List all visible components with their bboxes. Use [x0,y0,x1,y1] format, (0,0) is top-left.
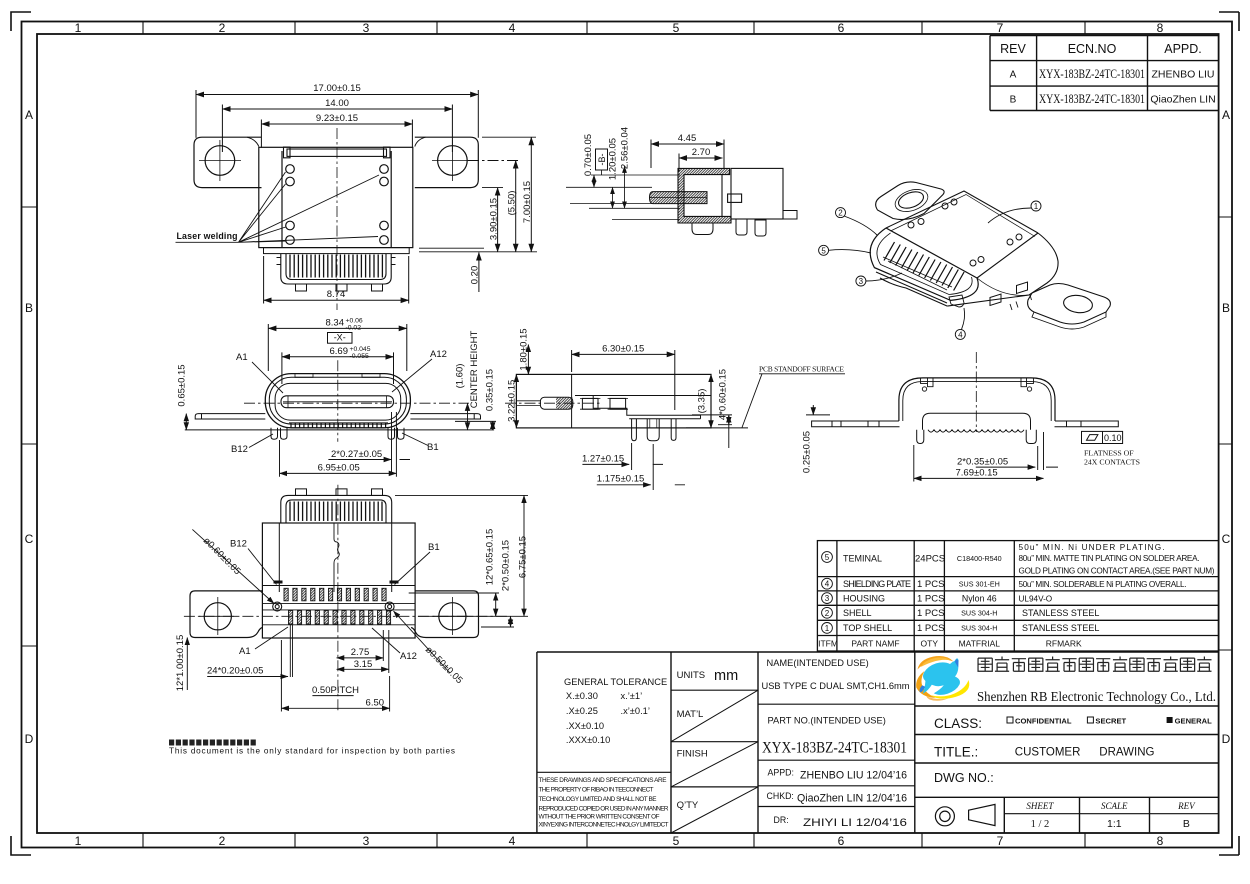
svg-text:3: 3 [859,277,864,286]
svg-text:SUS 304-H: SUS 304-H [961,609,997,618]
svg-text:1 PCS: 1 PCS [917,608,944,619]
svg-text:5: 5 [673,21,680,35]
svg-text:B: B [1183,818,1190,830]
svg-text:50u” MIN. Ni UNDER PLATING: 50u” MIN. Ni UNDER PLATING. [1019,543,1165,552]
svg-text:Laser welding: Laser welding [177,231,238,241]
svg-text:9.23±0.15: 9.23±0.15 [316,113,358,124]
svg-text:7.00±0.15: 7.00±0.15 [522,181,533,223]
svg-text:ZHIYI LI 12/04’16: ZHIYI LI 12/04’16 [803,817,907,829]
svg-text:C: C [1222,532,1231,546]
svg-text:A1: A1 [239,646,251,657]
svg-text:+0.06: +0.06 [346,318,363,325]
svg-text:Shenzhen RB Electronic Technol: Shenzhen RB Electronic Technology Co., L… [977,689,1216,704]
svg-text:6.95±0.05: 6.95±0.05 [318,462,360,473]
svg-text:SHELL: SHELL [843,608,872,618]
svg-text:1: 1 [1034,202,1039,211]
svg-text:2: 2 [219,834,226,848]
svg-text:7.69±0.15: 7.69±0.15 [955,468,997,479]
svg-text:mm: mm [714,668,738,684]
svg-text:D: D [25,732,34,746]
svg-text:A12: A12 [400,651,417,662]
svg-text:12*0.65±0.15: 12*0.65±0.15 [485,529,496,585]
svg-text:B1: B1 [428,542,440,553]
svg-text:6.50: 6.50 [366,698,385,709]
svg-text:X.±0.30: X.±0.30 [566,691,598,701]
svg-text:TECHNOLOGY LIMITED AND SHALL N: TECHNOLOGY LIMITED AND SHALL NOT BE [539,796,657,803]
svg-text:.XXX±0.10: .XXX±0.10 [566,735,610,745]
svg-text:CONFIDENTIAL: CONFIDENTIAL [1015,717,1072,726]
svg-text:1.20±0.05: 1.20±0.05 [608,138,619,180]
svg-text:6.69: 6.69 [330,346,349,357]
svg-text:3: 3 [363,834,370,848]
svg-text:24PCS: 24PCS [915,554,945,565]
svg-text:ECN.NO: ECN.NO [1068,42,1117,56]
svg-text:1.80±0.15: 1.80±0.15 [519,328,530,370]
svg-text:FLATNESS OF: FLATNESS OF [1084,449,1134,458]
svg-text:ZHENBO LIU 12/04’16: ZHENBO LIU 12/04’16 [800,770,907,782]
svg-text:0.20: 0.20 [470,266,481,285]
svg-text:(3.35): (3.35) [697,389,708,414]
svg-text:DRAWING: DRAWING [1099,747,1154,759]
svg-text:0.50PITCH: 0.50PITCH [312,685,359,696]
svg-text:.X±0.25: .X±0.25 [566,706,598,716]
svg-text:PART NAMF: PART NAMF [851,639,899,649]
svg-text:XYX-183BZ-24TC-18301: XYX-183BZ-24TC-18301 [762,740,907,757]
svg-text:ZHENBO LIU: ZHENBO LIU [1151,69,1214,81]
svg-text:CLASS:: CLASS: [934,716,982,731]
svg-text:2*0.50±0.15: 2*0.50±0.15 [501,540,512,591]
svg-text:TITLE.:: TITLE.: [934,745,978,760]
svg-text:USB TYPE C DUAL SMT,CH1.6m: USB TYPE C DUAL SMT,CH1.6mm [762,681,910,691]
svg-text:TEMINAL: TEMINAL [843,554,882,564]
svg-text:FINISH: FINISH [677,749,708,760]
svg-text:SHIELDING PLATE: SHIELDING PLATE [843,579,911,589]
svg-text:6: 6 [838,21,845,35]
svg-text:PCB STANDOFF SURFACE: PCB STANDOFF SURFACE [759,365,844,374]
svg-text:0.70±0.05: 0.70±0.05 [583,134,594,176]
svg-text:B1: B1 [427,442,439,453]
svg-text:1 PCS: 1 PCS [917,623,944,634]
svg-text:(1.60): (1.60) [455,364,466,389]
svg-text:UL94V-O: UL94V-O [1019,594,1053,603]
svg-text:XINYEXING INTERCONNETEC HNOLGY: XINYEXING INTERCONNETEC HNOLGY LIMITEDCT [539,822,669,829]
svg-text:14.00: 14.00 [325,98,349,109]
svg-text:4: 4 [509,834,516,848]
svg-text:3.22±0.15: 3.22±0.15 [507,380,518,422]
svg-text:2.70: 2.70 [692,147,711,158]
svg-text:C: C [25,532,34,546]
svg-text:2.56±0.04: 2.56±0.04 [620,127,631,169]
svg-text:+0.045: +0.045 [350,346,371,353]
svg-text:2: 2 [825,609,830,618]
svg-text:3: 3 [825,594,830,603]
svg-text:TOP SHELL: TOP SHELL [843,623,892,633]
svg-text:5: 5 [821,246,826,255]
svg-text:x.’±1’: x.’±1’ [621,691,643,701]
svg-text:1 PCS: 1 PCS [917,593,944,604]
svg-text:STANLESS STEEL: STANLESS STEEL [1022,623,1099,633]
svg-text:2*0.27±0.05: 2*0.27±0.05 [331,449,382,460]
svg-text:7: 7 [997,834,1004,848]
svg-text:XYX-183BZ-24TC-18301: XYX-183BZ-24TC-18301 [1039,92,1145,106]
svg-text:12*1.00±0.15: 12*1.00±0.15 [175,635,186,691]
svg-text:0.35±0.15: 0.35±0.15 [485,369,496,411]
svg-text:4: 4 [958,330,963,339]
svg-text:1: 1 [75,834,82,848]
svg-text:ITFM: ITFM [818,639,838,649]
svg-text:UNITS: UNITS [677,670,706,681]
svg-text:6: 6 [838,834,845,848]
svg-text:2: 2 [219,21,226,35]
svg-text:1: 1 [75,21,82,35]
svg-text:1.27±0.15: 1.27±0.15 [582,454,624,465]
svg-text:3.90±0.15: 3.90±0.15 [489,198,500,240]
svg-text:4*0.60±0.15: 4*0.60±0.15 [718,369,729,420]
svg-text:1.175±0.15: 1.175±0.15 [597,474,644,485]
svg-text:8: 8 [1157,834,1164,848]
svg-text:SCALE: SCALE [1101,801,1128,811]
svg-text:MAT’L: MAT’L [677,709,704,720]
svg-text:B12: B12 [230,539,247,550]
svg-text:24*0.20±0.05: 24*0.20±0.05 [207,666,263,677]
svg-text:C18400-R540: C18400-R540 [957,554,1002,563]
svg-text:REPRODUCED COPIED OR USED IN A: REPRODUCED COPIED OR USED IN ANY MANNER [539,806,669,813]
svg-text:APPD.: APPD. [1164,42,1202,56]
svg-text:SECRET: SECRET [1095,717,1126,726]
svg-text:NAME(INTENDED USE): NAME(INTENDED USE) [767,658,869,668]
svg-text:A: A [1222,108,1230,122]
svg-text:-0.055: -0.055 [350,353,369,360]
svg-text:(5.50): (5.50) [507,191,518,216]
svg-text:OTY: OTY [921,639,939,649]
svg-text:RFMARK: RFMARK [1046,639,1082,649]
svg-text:3: 3 [363,21,370,35]
svg-text:.XX±0.10: .XX±0.10 [566,721,604,731]
svg-text:REV: REV [1000,42,1026,56]
svg-text:5: 5 [825,553,830,562]
svg-text:1 / 2: 1 / 2 [1031,819,1050,830]
svg-text:B: B [25,301,33,315]
svg-text:DR:: DR: [774,815,789,825]
svg-text:HOUSING: HOUSING [843,593,885,603]
svg-text:REV: REV [1177,801,1196,811]
svg-text:B12: B12 [231,444,248,455]
svg-text:MATFRIAL: MATFRIAL [959,639,1001,649]
svg-text:APPD:: APPD: [768,768,794,778]
svg-text:0.65±0.15: 0.65±0.15 [177,364,188,406]
svg-text:A: A [1010,70,1017,81]
svg-text:.x’±0.1’: .x’±0.1’ [621,706,650,716]
svg-text:-0.02: -0.02 [346,325,362,332]
svg-text:8.74: 8.74 [327,289,346,300]
svg-text:8: 8 [1157,21,1164,35]
svg-text:WTHOUT THE PRIOR WRITTEN CONS: WTHOUT THE PRIOR WRITTEN CONSENT OF [539,814,660,821]
svg-text:7: 7 [997,21,1004,35]
svg-text:A12: A12 [430,349,447,360]
svg-text:-B-: -B- [597,154,607,166]
svg-text:CHKD:: CHKD: [767,791,794,801]
svg-text:STANLESS STEEL: STANLESS STEEL [1022,608,1099,618]
svg-text:1: 1 [825,624,830,633]
svg-text:17.00±0.15: 17.00±0.15 [313,83,360,94]
svg-text:GENERAL: GENERAL [1175,717,1212,726]
svg-text:-X-: -X- [334,333,346,343]
svg-text:XYX-183BZ-24TC-18301: XYX-183BZ-24TC-18301 [1039,67,1145,81]
svg-text:24X CONTACTS: 24X CONTACTS [1084,458,1140,467]
svg-text:QiaoZhen LIN 12/04’16: QiaoZhen LIN 12/04’16 [797,793,907,805]
svg-text:5: 5 [673,834,680,848]
svg-text:CUSTOMER: CUSTOMER [1015,747,1081,759]
svg-text:50u” MIN. SOLDERABLE Ni PL: 50u” MIN. SOLDERABLE Ni PLATING OVERALL. [1019,580,1187,589]
svg-text:Nylon 46: Nylon 46 [962,593,997,603]
svg-text:QiaoZhen LIN: QiaoZhen LIN [1150,94,1215,106]
svg-text:A: A [25,108,33,122]
svg-text:B: B [1010,95,1017,106]
svg-text:DWG NO.:: DWG NO.: [934,771,994,785]
svg-text:4: 4 [825,580,830,589]
svg-text:SUS 301-EH: SUS 301-EH [959,580,1000,589]
svg-text:PART NO.(INTENDED USE): PART NO.(INTENDED USE) [768,716,886,726]
svg-text:3.15: 3.15 [354,659,373,670]
svg-text:SHEET: SHEET [1026,801,1054,811]
svg-text:4.45: 4.45 [678,133,697,144]
svg-text:0.10: 0.10 [1104,433,1122,443]
svg-text:SUS 304-H: SUS 304-H [961,624,997,633]
svg-text:2.75: 2.75 [351,647,370,658]
svg-text:4: 4 [509,21,516,35]
svg-text:THE PROPERTY OF RIBAO IN TEECO: THE PROPERTY OF RIBAO IN TEECONNECT [539,787,654,794]
svg-text:A1: A1 [236,352,248,363]
svg-text:8.34: 8.34 [326,318,345,329]
svg-text:6.30±0.15: 6.30±0.15 [602,343,644,354]
svg-text:2*0.35±0.05: 2*0.35±0.05 [957,456,1008,467]
svg-text:D: D [1222,732,1231,746]
svg-text:THESE DRAWINGS AND SPECIFICATI: THESE DRAWINGS AND SPECIFICATIONS ARE [539,777,667,784]
svg-text:GOLD PLATING ON CONTACT AR: GOLD PLATING ON CONTACT AREA.(SEE PART N… [1019,566,1215,575]
svg-text:CENTER HEIGHT: CENTER HEIGHT [469,331,480,409]
svg-text:1 PCS: 1 PCS [917,579,944,590]
svg-text:2: 2 [838,209,843,218]
svg-text:Q’TY: Q’TY [677,800,699,811]
svg-text:6.75±0.15: 6.75±0.15 [518,536,529,578]
svg-text:1:1: 1:1 [1107,818,1122,830]
svg-text:This document is the only: This document is the only standard for i… [169,747,455,756]
svg-text:B: B [1222,301,1230,315]
svg-text:GENERAL TOLERANCE: GENERAL TOLERANCE [564,677,667,687]
svg-text:0.25±0.05: 0.25±0.05 [802,431,813,473]
svg-text:80u” MIN. MATTE TIN PLATIN: 80u” MIN. MATTE TIN PLATING ON SOLDER AR… [1019,554,1200,563]
